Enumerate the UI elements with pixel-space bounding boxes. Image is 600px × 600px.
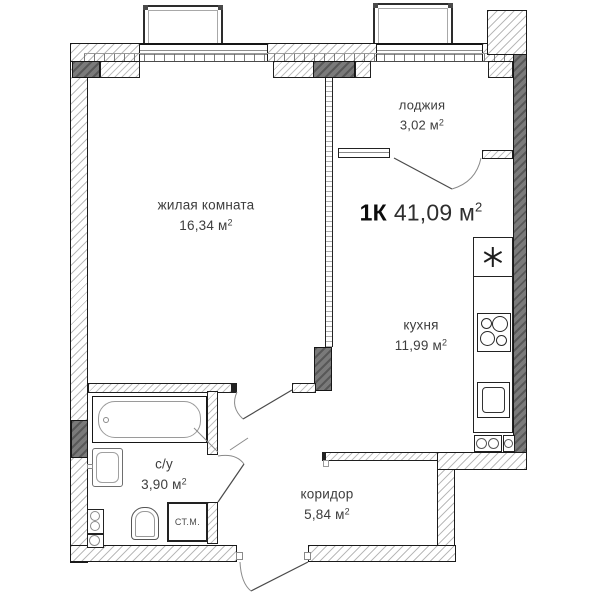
room-name-bathroom: с/у: [141, 455, 187, 472]
room-area-corridor: 5,84 м2: [301, 502, 354, 523]
entrance-door-leaf: [251, 562, 308, 591]
room-name-loggia: лоджия: [399, 96, 445, 113]
apartment-total-area: 41,09: [394, 200, 453, 226]
room-name-kitchen: кухня: [395, 316, 447, 333]
room-name-living: жилая комната: [158, 196, 255, 213]
room-label-kitchen: кухня 11,99 м2: [395, 316, 447, 354]
living-room-door-leaf: [243, 390, 292, 419]
balcony-door-leaf: [394, 158, 452, 189]
bathroom-door-arc: [218, 455, 244, 464]
room-area-living: 16,34 м2: [158, 213, 255, 234]
living-room-door-arc: [235, 392, 243, 419]
entrance-door-arc: [240, 562, 251, 591]
room-label-bathroom: с/у 3,90 м2: [141, 455, 187, 493]
balcony-door-arc: [452, 158, 481, 189]
room-label-loggia: лоджия 3,02 м2: [399, 96, 445, 133]
room-name-corridor: коридор: [301, 485, 354, 502]
room-area-loggia: 3,02 м2: [399, 113, 445, 133]
apartment-type: 1К: [360, 200, 387, 226]
room-area-kitchen: 11,99 м2: [395, 333, 447, 354]
room-label-corridor: коридор 5,84 м2: [301, 485, 354, 523]
bathroom-door-open-line: [194, 428, 218, 452]
room-area-bathroom: 3,90 м2: [141, 472, 187, 493]
apartment-title: 1К41,09 м2: [360, 200, 483, 227]
room-label-living: жилая комната 16,34 м2: [158, 196, 255, 234]
floor-plan: СТ.М.: [0, 0, 600, 600]
bathroom-door-leaf: [218, 464, 244, 502]
corridor-funnel-line: [230, 438, 248, 450]
